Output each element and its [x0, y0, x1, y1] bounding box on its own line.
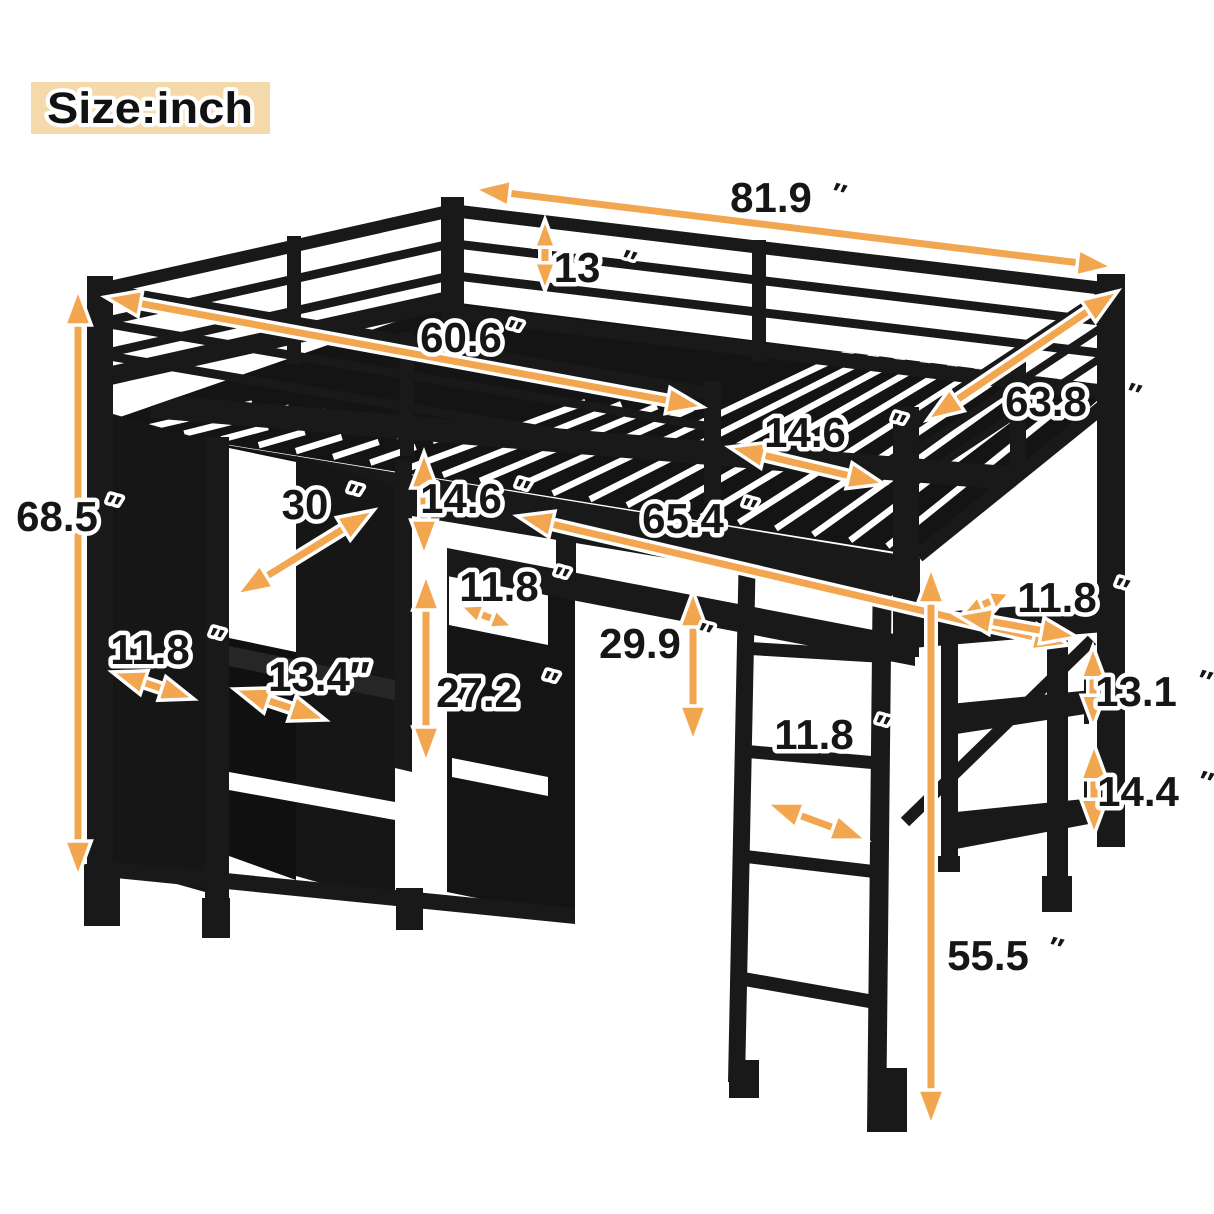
svg-text:11.8: 11.8: [459, 563, 538, 610]
svg-text:65.4: 65.4: [642, 495, 724, 542]
svg-text:14.6: 14.6: [420, 475, 502, 522]
svg-text:14.6: 14.6: [764, 409, 846, 456]
svg-text:11.8: 11.8: [1017, 574, 1096, 621]
svg-text:11.8: 11.8: [110, 626, 189, 673]
svg-text:55.5: 55.5: [947, 932, 1029, 979]
svg-text:13.1: 13.1: [1095, 668, 1177, 715]
svg-text:60.6: 60.6: [420, 314, 502, 361]
svg-text:Size:inch: Size:inch: [47, 84, 253, 133]
svg-text:81.9: 81.9: [730, 174, 812, 221]
svg-text:13.4″: 13.4″: [268, 653, 370, 700]
svg-text:″: ″: [1122, 377, 1144, 413]
svg-text:68.5: 68.5: [16, 493, 98, 540]
svg-text:13: 13: [554, 244, 601, 291]
svg-text:30: 30: [282, 481, 329, 528]
svg-text:14.4: 14.4: [1097, 768, 1179, 815]
svg-text:11.8: 11.8: [774, 711, 853, 758]
svg-text:″: ″: [1193, 664, 1214, 700]
svg-text:29.9: 29.9: [599, 620, 681, 667]
svg-text:″: ″: [1194, 765, 1214, 801]
svg-text:″: ″: [1044, 931, 1066, 967]
svg-text:27.2: 27.2: [436, 669, 518, 716]
svg-text:63.8: 63.8: [1005, 378, 1087, 425]
svg-text:″: ″: [827, 177, 849, 213]
